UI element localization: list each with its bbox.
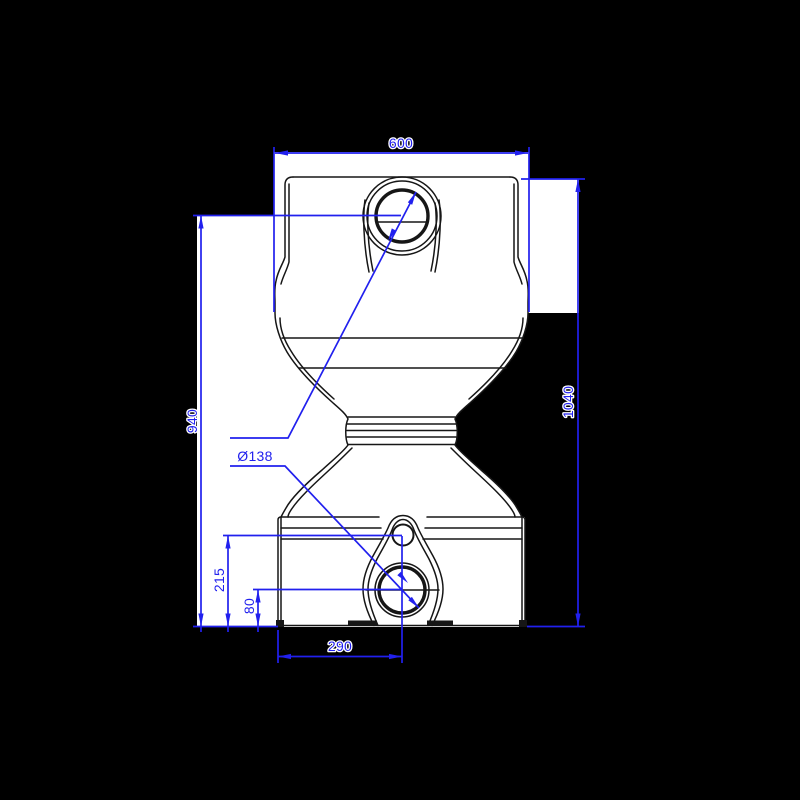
foot-corner-right <box>519 620 527 627</box>
dim-600-label: 600 <box>389 135 413 151</box>
dim-80-label: 80 <box>241 598 257 614</box>
dim-1040-label: 1040 <box>560 386 576 418</box>
dimension-drawing: 600 1040 940 Ø138 215 80 290 <box>0 0 800 800</box>
foot-right <box>427 621 453 626</box>
dim-290-label: 290 <box>328 638 352 654</box>
dim-215-label: 215 <box>211 568 227 592</box>
dim-940-label: 940 <box>184 409 200 433</box>
dim-diameter-label: Ø138 <box>237 448 272 464</box>
technical-drawing-canvas: 600 1040 940 Ø138 215 80 290 <box>0 0 800 800</box>
foot-left <box>348 621 377 626</box>
